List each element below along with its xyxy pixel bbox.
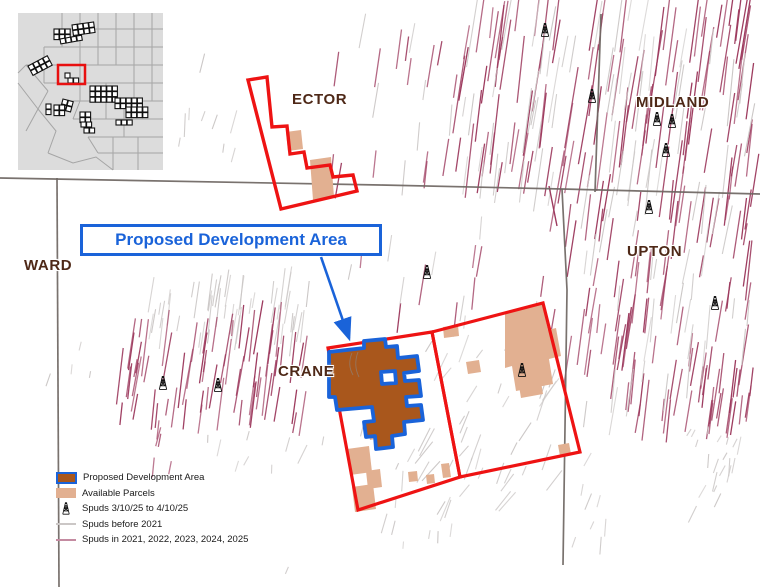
spud-line — [541, 276, 544, 297]
spud-line — [539, 84, 546, 148]
spud-line — [456, 138, 461, 172]
spud-line — [171, 388, 176, 428]
spud-line — [720, 466, 726, 476]
spud-line — [459, 446, 468, 457]
spud-line — [723, 453, 727, 460]
spud-line — [405, 37, 408, 61]
spud-line — [589, 288, 597, 334]
spud-line — [322, 437, 324, 446]
inset-parcel-cluster — [68, 78, 79, 83]
spud-line — [334, 52, 339, 87]
spud-line — [601, 324, 606, 355]
spud-line — [701, 225, 708, 277]
spud-line — [274, 387, 280, 422]
spud-line — [585, 494, 592, 510]
spud-line — [298, 445, 307, 464]
spud-line — [697, 187, 706, 243]
spud-line — [463, 97, 466, 117]
spud-line — [607, 218, 613, 260]
proposed-area-swatch — [56, 472, 77, 484]
spud-line — [739, 325, 749, 386]
spud-line — [454, 75, 457, 98]
spud-line — [252, 292, 255, 308]
spud-line — [597, 304, 600, 333]
proposed-development-callout: Proposed Development Area — [80, 224, 382, 256]
spud-line — [605, 519, 606, 537]
spud-line — [540, 93, 546, 148]
spud-line — [192, 282, 195, 297]
spud-line — [139, 319, 141, 337]
spud-line — [584, 251, 587, 275]
spud-line — [552, 309, 556, 329]
spud-line — [708, 454, 709, 468]
available-parcel — [466, 360, 481, 374]
spud-line — [652, 336, 655, 364]
spud-line — [540, 28, 545, 74]
spud-line — [473, 245, 476, 268]
spud-line — [729, 0, 734, 26]
spud-line — [726, 437, 728, 444]
spud-line — [534, 148, 543, 211]
spud-line — [177, 316, 180, 331]
spud-line — [750, 368, 753, 397]
spud-line — [637, 192, 641, 221]
spud-line — [628, 140, 636, 206]
derrick-icon — [423, 265, 430, 278]
spud-line — [184, 113, 185, 137]
spud-line — [407, 58, 411, 85]
spud-line — [693, 182, 700, 220]
spud-line — [588, 47, 593, 79]
spud-line — [687, 354, 691, 398]
spud-line — [570, 36, 576, 73]
spud-line — [635, 404, 640, 433]
spud-line — [511, 443, 517, 455]
spud-line — [400, 277, 404, 304]
spud-line — [212, 115, 217, 129]
spud-line — [743, 241, 749, 287]
spud-line — [642, 380, 649, 441]
legend-label: Spuds before 2021 — [82, 519, 162, 530]
spud-line — [746, 63, 754, 119]
spud-line — [450, 524, 452, 537]
spud-line — [200, 54, 205, 73]
inset-parcel-cluster — [116, 120, 132, 125]
spud-line — [224, 305, 226, 319]
spud-line — [722, 206, 732, 255]
spud-line — [577, 152, 585, 203]
spud-line — [266, 324, 273, 376]
spud-line — [567, 220, 576, 277]
legend-label: Proposed Development Area — [83, 472, 204, 483]
spud-line — [148, 277, 154, 312]
spud-line — [735, 9, 739, 44]
spud-line — [415, 442, 433, 464]
spud-line — [620, 47, 625, 94]
callout-arrow-layer — [321, 257, 349, 338]
spud-line — [581, 484, 583, 496]
spud-line — [654, 259, 657, 279]
spud-line — [163, 333, 172, 382]
spud-line — [590, 522, 594, 530]
spud-line — [704, 129, 711, 173]
spud-line — [396, 463, 399, 469]
county-label-crane: CRANE — [278, 363, 334, 380]
derrick-icon — [56, 502, 76, 515]
spud-line — [225, 270, 229, 297]
inset-parcel-cluster — [54, 105, 65, 116]
spud-line — [217, 440, 221, 457]
spud-line — [714, 494, 721, 508]
spud-line — [659, 147, 669, 218]
spud-line — [633, 211, 638, 237]
spud-line — [79, 342, 81, 351]
inset-parcel-cluster — [90, 86, 117, 102]
spud-line — [490, 7, 493, 38]
spud-line — [553, 0, 562, 50]
spud-line — [467, 386, 477, 402]
spud-line — [688, 506, 696, 523]
spud-line — [397, 303, 401, 333]
spud-line — [402, 160, 405, 195]
spud-line — [687, 429, 691, 436]
spud-line — [335, 163, 341, 199]
spud-line — [231, 148, 235, 162]
inset-parcel-cluster — [81, 122, 92, 127]
spud-line — [89, 371, 90, 378]
spud-line — [522, 466, 526, 475]
spud-line — [733, 439, 737, 448]
inset-parcel-cluster — [72, 22, 95, 36]
spud-line — [674, 369, 683, 416]
spud-line — [480, 217, 482, 240]
spud-line — [285, 567, 288, 574]
spud-line — [71, 364, 72, 374]
inset-parcel-cluster — [46, 104, 51, 115]
inset-parcel-cluster — [65, 73, 70, 78]
spud-line — [586, 288, 590, 316]
spud-line — [713, 459, 718, 473]
available-parcel — [441, 463, 451, 478]
spud-line — [128, 318, 136, 368]
spud-line — [438, 41, 442, 65]
spud-line — [429, 530, 431, 539]
spud-line — [254, 300, 263, 354]
spud-line — [423, 80, 426, 100]
spud-line — [409, 23, 415, 53]
spud-line — [432, 252, 436, 275]
inset-parcel-cluster — [80, 112, 91, 123]
spud-line — [673, 40, 678, 72]
spud-line — [585, 194, 590, 240]
spud-line — [565, 67, 578, 148]
spud-line — [719, 353, 724, 393]
spud-line — [497, 463, 504, 484]
legend-item-spuds-before-2021: Spuds before 2021 — [56, 519, 248, 530]
spud-line — [223, 144, 224, 153]
spud-line — [564, 336, 572, 387]
spud-line — [722, 145, 728, 198]
spud-line — [240, 275, 243, 310]
legend-label: Spuds 3/10/25 to 4/10/25 — [82, 503, 188, 514]
spud-line — [717, 5, 722, 38]
spud-line — [547, 470, 562, 490]
spud-line — [476, 246, 481, 276]
spud-line — [142, 319, 149, 376]
spud-line — [375, 48, 381, 87]
spud-line — [656, 106, 664, 168]
spud-line — [600, 537, 601, 555]
spud-line — [732, 298, 734, 318]
spud-line — [427, 45, 434, 87]
spud-line — [194, 282, 199, 319]
spud-line — [670, 360, 676, 399]
spud-line — [46, 374, 50, 387]
spud-line — [572, 537, 576, 547]
spud-line — [562, 36, 568, 67]
spud-line — [373, 150, 376, 177]
map-legend: Proposed Development Area Available Parc… — [56, 472, 248, 545]
spud-line — [593, 258, 598, 286]
spud-line — [547, 51, 550, 77]
pink-line-swatch — [56, 539, 76, 541]
spud-line — [537, 390, 547, 420]
spud-line — [286, 437, 290, 451]
spud-line — [159, 303, 161, 315]
spud-line — [476, 0, 488, 52]
spud-line — [403, 542, 404, 549]
spud-line — [727, 282, 730, 309]
derrick-icon — [653, 112, 660, 125]
spud-line — [733, 211, 740, 259]
spud-line — [388, 235, 392, 261]
spud-line — [459, 47, 468, 101]
spud-line — [348, 264, 351, 279]
spud-line — [373, 83, 379, 118]
county-label-ward: WARD — [24, 257, 72, 274]
spud-line — [684, 201, 691, 253]
spud-line — [624, 73, 631, 110]
spud-line — [460, 485, 470, 497]
spud-line — [691, 342, 699, 386]
spud-line — [584, 401, 587, 427]
callout-arrow — [321, 257, 349, 338]
spud-line — [408, 449, 415, 462]
spud-line — [637, 130, 645, 184]
inset-parcel-cluster — [84, 128, 95, 133]
parcels-layer — [248, 77, 580, 512]
spud-line — [271, 281, 273, 304]
legend-label: Available Parcels — [82, 488, 155, 499]
spud-line — [577, 309, 584, 365]
spud-line — [201, 111, 205, 121]
spud-line — [566, 204, 571, 247]
spud-line — [212, 317, 217, 352]
spud-line — [680, 29, 687, 68]
spud-line — [685, 391, 692, 432]
spud-line — [515, 0, 521, 31]
spud-line — [685, 299, 691, 333]
spud-line — [117, 348, 124, 404]
spud-line — [234, 356, 244, 413]
spud-line — [271, 360, 276, 396]
spud-line — [144, 356, 149, 383]
spud-line — [449, 460, 453, 468]
spud-line — [706, 305, 710, 349]
spud-line — [519, 133, 528, 190]
spud-line — [699, 485, 706, 498]
spud-line — [235, 461, 238, 472]
spud-line — [460, 296, 464, 322]
spud-line — [708, 346, 712, 379]
spud-line — [751, 154, 759, 207]
spud-line — [614, 261, 619, 298]
spud-line — [493, 68, 498, 97]
legend-item-spuds-2021-2025: Spuds in 2021, 2022, 2023, 2024, 2025 — [56, 534, 248, 545]
spud-line — [612, 121, 620, 183]
spud-line — [628, 0, 633, 21]
spud-line — [244, 456, 249, 465]
spud-line — [519, 423, 531, 441]
county-label-midland: MIDLAND — [636, 94, 709, 111]
spud-line — [206, 387, 208, 410]
spud-line — [481, 66, 486, 104]
spud-line — [151, 389, 155, 429]
spud-line — [476, 350, 482, 358]
spud-line — [589, 44, 599, 116]
spud-line — [419, 265, 426, 306]
spud-line — [381, 514, 387, 534]
spud-line — [597, 112, 608, 191]
spud-line — [426, 341, 433, 352]
spud-line — [512, 129, 519, 172]
spud-line — [716, 301, 723, 342]
spud-line — [402, 471, 403, 492]
inset-parcel-cluster — [126, 107, 148, 118]
spud-line — [590, 234, 596, 276]
legend-label: Spuds in 2021, 2022, 2023, 2024, 2025 — [82, 534, 248, 545]
spud-line — [392, 521, 396, 535]
spud-line — [737, 437, 741, 455]
spud-line — [249, 298, 251, 314]
spud-line — [732, 458, 735, 473]
spud-line — [292, 390, 297, 424]
county-label-upton: UPTON — [627, 243, 682, 260]
spud-line — [191, 322, 197, 361]
spud-line — [503, 396, 509, 407]
spud-line — [691, 273, 693, 300]
map-canvas: ECTOR MIDLAND UPTON WARD CRANE Proposed … — [0, 0, 760, 587]
inset-locator-map — [18, 13, 163, 170]
spud-line — [584, 453, 591, 466]
spud-line — [671, 295, 676, 334]
legend-item-parcels: Available Parcels — [56, 488, 248, 499]
spud-line — [698, 17, 706, 82]
derrick-icon — [711, 296, 718, 309]
spud-line — [239, 400, 242, 426]
spud-line — [505, 142, 509, 173]
spud-line — [476, 449, 481, 470]
spud-line — [646, 139, 655, 188]
spud-line — [549, 186, 557, 226]
spud-line — [694, 7, 700, 57]
spud-line — [459, 335, 469, 362]
spud-line — [155, 403, 157, 428]
spud-line — [597, 495, 600, 507]
spud-line — [166, 399, 169, 416]
spud-line — [226, 339, 232, 384]
legend-item-spuds-recent: Spuds 3/10/25 to 4/10/25 — [56, 503, 248, 514]
spud-line — [306, 281, 309, 307]
spud-line — [717, 436, 721, 443]
available-parcel — [426, 474, 435, 484]
spud-line — [664, 374, 669, 412]
spud-line — [691, 430, 695, 437]
gray-line-swatch — [56, 523, 76, 525]
spud-line — [745, 190, 751, 230]
spud-line — [183, 399, 186, 429]
spud-line — [498, 384, 501, 394]
spud-line — [247, 431, 250, 440]
spud-line — [532, 0, 540, 47]
spud-line — [677, 283, 684, 323]
legend-item-proposed: Proposed Development Area — [56, 472, 248, 483]
spud-line — [453, 56, 465, 134]
spud-line — [231, 110, 237, 133]
spud-line — [120, 403, 122, 426]
spud-line — [359, 14, 366, 48]
spud-line — [443, 139, 449, 176]
spud-line — [203, 318, 208, 353]
spud-line — [449, 105, 452, 136]
spud-line — [189, 108, 190, 120]
available-parcel — [408, 471, 418, 482]
spud-line — [696, 440, 698, 447]
spud-line — [609, 187, 615, 217]
derrick-icon — [662, 143, 669, 156]
spud-line — [396, 30, 401, 69]
spud-line — [517, 36, 524, 103]
spud-line — [472, 277, 475, 309]
spud-line — [199, 333, 201, 348]
spud-line — [475, 90, 481, 142]
spud-line — [736, 0, 744, 41]
available-parcels-swatch — [56, 488, 76, 498]
spud-line — [179, 138, 181, 147]
spud-line — [417, 122, 419, 150]
spud-line — [299, 391, 306, 436]
spud-line — [739, 395, 742, 424]
spud-line — [682, 249, 689, 284]
county-label-ector: ECTOR — [292, 91, 347, 108]
